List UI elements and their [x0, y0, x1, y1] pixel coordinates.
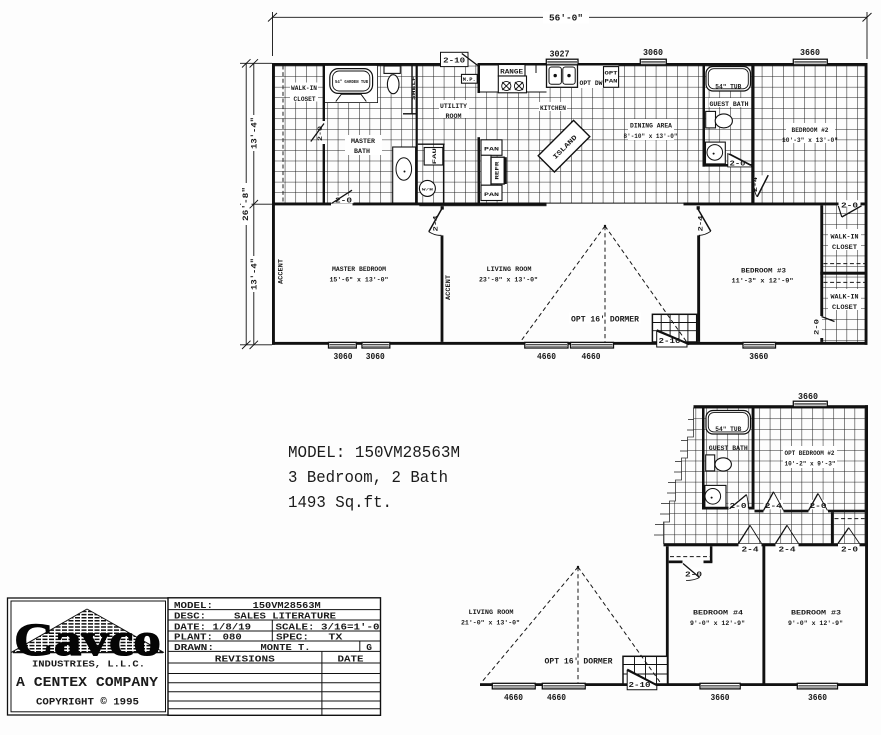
svg-text:PAN: PAN — [605, 79, 618, 85]
svg-text:WALK-IN: WALK-IN — [291, 85, 317, 93]
svg-text:GUEST BATH: GUEST BATH — [710, 101, 749, 109]
svg-text:2-0: 2-0 — [841, 203, 858, 211]
svg-text:1493 Sq.ft.: 1493 Sq.ft. — [288, 493, 392, 512]
svg-text:4660: 4660 — [582, 352, 601, 362]
svg-text:MODEL:: MODEL: — [174, 600, 213, 611]
svg-text:REVISIONS: REVISIONS — [215, 653, 275, 664]
svg-text:3060: 3060 — [334, 352, 353, 362]
svg-text:2-10: 2-10 — [443, 57, 466, 65]
svg-text:4660: 4660 — [504, 693, 523, 703]
svg-text:LIVING ROOM: LIVING ROOM — [487, 266, 532, 274]
svg-text:2-4: 2-4 — [697, 216, 705, 232]
svg-text:UTILITY: UTILITY — [440, 103, 468, 111]
svg-text:2-0: 2-0 — [814, 319, 822, 335]
svg-text:2-0: 2-0 — [335, 197, 352, 205]
svg-text:2-0: 2-0 — [317, 126, 324, 141]
svg-text:54" TUB: 54" TUB — [715, 426, 741, 433]
svg-text:MASTER BEDROOM: MASTER BEDROOM — [332, 266, 386, 274]
svg-text:13'-4": 13'-4" — [250, 117, 260, 149]
svg-text:WALK-IN: WALK-IN — [831, 294, 859, 302]
svg-text:9'-0" x 12'-9": 9'-0" x 12'-9" — [690, 620, 745, 628]
svg-text:2-4: 2-4 — [742, 546, 759, 554]
svg-text:3060: 3060 — [366, 352, 385, 362]
svg-text:2-0: 2-0 — [841, 546, 858, 554]
svg-text:21'-0" x 13'-0": 21'-0" x 13'-0" — [461, 620, 520, 628]
svg-text:3660: 3660 — [798, 392, 818, 402]
svg-text:3060: 3060 — [643, 48, 663, 58]
svg-text:3 Bedroom, 2 Bath: 3 Bedroom, 2 Bath — [288, 468, 448, 487]
svg-text:A CENTEX COMPANY: A CENTEX COMPANY — [16, 676, 159, 691]
svg-text:BEDROOM #3: BEDROOM #3 — [741, 268, 786, 276]
svg-text:15'-6" x 13'-0": 15'-6" x 13'-0" — [330, 276, 389, 284]
svg-text:KITCHEN: KITCHEN — [540, 105, 566, 113]
svg-text:BEDROOM #3: BEDROOM #3 — [791, 610, 841, 618]
svg-text:2-4: 2-4 — [432, 216, 440, 232]
svg-text:BATH: BATH — [354, 148, 370, 156]
svg-text:BEDROOM #4: BEDROOM #4 — [693, 610, 743, 618]
svg-text:DESC:: DESC: — [174, 610, 206, 621]
svg-text:G: G — [366, 642, 372, 653]
svg-text:2-4: 2-4 — [779, 546, 796, 554]
svg-text:9'-0" x 12'-9": 9'-0" x 12'-9" — [788, 620, 843, 628]
svg-text:10'-3" x 13'-0": 10'-3" x 13'-0" — [782, 137, 838, 145]
svg-text:ACCENT: ACCENT — [445, 275, 452, 300]
svg-text:WALK-IN: WALK-IN — [831, 234, 859, 242]
svg-text:2-0: 2-0 — [685, 572, 702, 580]
svg-text:COPYRIGHT © 1995: COPYRIGHT © 1995 — [36, 697, 139, 709]
svg-text:3660: 3660 — [711, 693, 730, 703]
svg-text:4660: 4660 — [547, 693, 566, 703]
svg-text:3660: 3660 — [800, 48, 820, 58]
svg-text:GUEST BATH: GUEST BATH — [709, 445, 748, 453]
svg-text:2-4: 2-4 — [752, 177, 760, 192]
svg-text:TX: TX — [328, 632, 342, 643]
svg-text:13'-4": 13'-4" — [250, 258, 260, 290]
svg-text:3660: 3660 — [749, 352, 768, 362]
svg-text:4660: 4660 — [537, 352, 556, 362]
svg-text:BEDROOM #2: BEDROOM #2 — [792, 127, 829, 135]
svg-text:MODEL: 150VM28563M: MODEL: 150VM28563M — [288, 443, 460, 462]
svg-text:CLOSET: CLOSET — [294, 96, 316, 104]
svg-text:SHELF: SHELF — [411, 76, 417, 100]
svg-text:DINING AREA: DINING AREA — [630, 123, 673, 131]
svg-text:2-0: 2-0 — [730, 503, 747, 511]
svg-text:2-10: 2-10 — [629, 682, 652, 690]
svg-text:SALES LITERATURE: SALES LITERATURE — [234, 610, 336, 621]
svg-text:11'-3" x 12'-9": 11'-3" x 12'-9" — [732, 277, 794, 285]
svg-text:OPT 16' DORMER: OPT 16' DORMER — [545, 656, 614, 666]
svg-text:REFR: REFR — [493, 161, 500, 180]
svg-text:2-10: 2-10 — [659, 338, 682, 346]
svg-text:56'-0": 56'-0" — [549, 14, 583, 24]
svg-text:LIVING ROOM: LIVING ROOM — [469, 609, 514, 617]
svg-text:INDUSTRIES, L.L.C.: INDUSTRIES, L.L.C. — [32, 659, 145, 670]
svg-text:ROOM: ROOM — [446, 113, 462, 121]
svg-text:2-4: 2-4 — [765, 503, 782, 511]
svg-text:FAU: FAU — [431, 148, 438, 164]
svg-text:2-0: 2-0 — [810, 503, 827, 511]
svg-text:PAN: PAN — [484, 145, 499, 152]
svg-text:54" TUB: 54" TUB — [715, 84, 741, 91]
svg-text:MASTER: MASTER — [351, 138, 376, 146]
svg-text:26'-8": 26'-8" — [241, 187, 251, 221]
svg-text:080: 080 — [223, 632, 242, 643]
svg-text:3660: 3660 — [808, 693, 827, 703]
svg-text:MONTE T.: MONTE T. — [261, 642, 311, 653]
svg-text:M.P.: M.P. — [463, 77, 476, 83]
svg-text:2-0: 2-0 — [730, 161, 746, 169]
svg-text:W/H: W/H — [422, 187, 434, 192]
svg-text:23'-8" x 13'-0": 23'-8" x 13'-0" — [479, 276, 538, 284]
svg-text:DRAWN:: DRAWN: — [174, 642, 214, 653]
svg-text:DATE: DATE — [338, 653, 364, 664]
svg-text:PAN: PAN — [484, 191, 499, 198]
svg-text:OPT DW: OPT DW — [580, 80, 603, 87]
svg-text:150VM28563M: 150VM28563M — [253, 600, 321, 611]
svg-text:RANGE: RANGE — [500, 68, 523, 75]
svg-text:CLOSET: CLOSET — [832, 304, 857, 312]
svg-text:8'-10" x 13'-0": 8'-10" x 13'-0" — [624, 133, 678, 141]
svg-text:OPT: OPT — [605, 71, 619, 77]
svg-text:OPT BEDROOM #2: OPT BEDROOM #2 — [785, 450, 835, 458]
svg-text:3027: 3027 — [550, 50, 570, 60]
svg-text:CLOSET: CLOSET — [832, 244, 857, 252]
svg-text:10'-2" x 9'-3": 10'-2" x 9'-3" — [785, 460, 836, 468]
svg-text:ACCENT: ACCENT — [278, 259, 285, 284]
svg-text:54" GARDEN TUB: 54" GARDEN TUB — [335, 80, 368, 85]
